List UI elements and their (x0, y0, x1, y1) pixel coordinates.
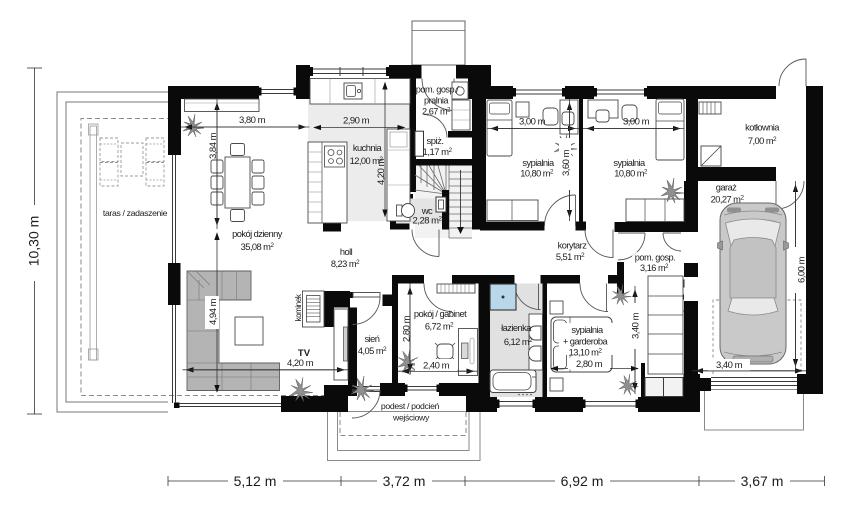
svg-text:TV: TV (298, 348, 311, 359)
svg-text:taras / zadaszenie: taras / zadaszenie (103, 208, 168, 218)
svg-text:6,00 m: 6,00 m (797, 256, 808, 283)
svg-text:podest / podcień: podest / podcień (381, 401, 440, 411)
svg-text:sypialnia: sypialnia (613, 158, 646, 168)
svg-text:12,00 m2: 12,00 m2 (350, 156, 384, 166)
svg-text:kotłownia: kotłownia (745, 123, 780, 133)
svg-text:pom. gosp.: pom. gosp. (635, 253, 675, 263)
svg-text:1,17 m2: 1,17 m2 (423, 147, 453, 158)
svg-text:2,67 m2: 2,67 m2 (422, 107, 451, 117)
svg-text:2,80 m: 2,80 m (402, 315, 413, 342)
svg-text:4,05 m2: 4,05 m2 (358, 346, 387, 356)
svg-text:3,00 m: 3,00 m (519, 117, 546, 128)
svg-text:spiż.: spiż. (426, 136, 443, 147)
svg-text:garaż: garaż (716, 183, 737, 193)
svg-text:5,51 m2: 5,51 m2 (556, 252, 585, 262)
svg-text:kominek: kominek (294, 293, 303, 321)
svg-text:3,80 m: 3,80 m (239, 115, 266, 126)
svg-text:korytarz: korytarz (558, 241, 588, 251)
svg-text:+ garderoba: + garderoba (563, 337, 609, 347)
svg-text:35,08 m2: 35,08 m2 (241, 242, 275, 252)
svg-text:pom. gosp./: pom. gosp./ (416, 85, 459, 95)
svg-text:3,00 m: 3,00 m (623, 117, 650, 128)
svg-text:6,12 m2: 6,12 m2 (504, 337, 533, 347)
svg-text:8,23 m2: 8,23 m2 (331, 259, 360, 269)
svg-text:pokój / gabinet: pokój / gabinet (414, 309, 467, 319)
svg-text:3,40 m: 3,40 m (631, 312, 642, 339)
svg-text:10,30 m: 10,30 m (26, 216, 42, 267)
svg-text:2,40 m: 2,40 m (423, 361, 450, 372)
svg-text:3,60 m: 3,60 m (561, 149, 572, 176)
svg-text:sień: sień (365, 334, 380, 344)
svg-text:13,10 m2: 13,10 m2 (569, 348, 603, 358)
svg-text:2,90 m: 2,90 m (343, 116, 370, 127)
svg-text:20,27 m2: 20,27 m2 (711, 195, 745, 205)
svg-text:kuchnia: kuchnia (353, 143, 383, 153)
svg-text:holl: holl (340, 247, 353, 257)
svg-text:sypialnia: sypialnia (571, 325, 604, 335)
svg-text:sypialnia: sypialnia (522, 158, 555, 168)
svg-text:6,92 m: 6,92 m (561, 473, 604, 489)
svg-text:pokój dzienny: pokój dzienny (232, 229, 283, 239)
svg-text:pralnia: pralnia (424, 96, 449, 106)
svg-text:4,94 m: 4,94 m (208, 298, 219, 325)
svg-text:2,80 m: 2,80 m (576, 359, 603, 370)
svg-text:3,16 m2: 3,16 m2 (640, 263, 669, 273)
svg-text:10,80 m2: 10,80 m2 (614, 169, 648, 179)
svg-text:wejściowy: wejściowy (392, 413, 430, 423)
svg-text:3,84 m: 3,84 m (208, 132, 219, 159)
svg-text:6,72 m2: 6,72 m2 (425, 322, 454, 332)
svg-text:2,28 m2: 2,28 m2 (413, 216, 443, 227)
svg-text:7,00 m2: 7,00 m2 (748, 136, 777, 146)
svg-text:3,72 m: 3,72 m (383, 473, 426, 489)
svg-text:3,40 m: 3,40 m (716, 360, 743, 371)
svg-text:5,12 m: 5,12 m (234, 473, 277, 489)
svg-text:3,67 m: 3,67 m (741, 473, 784, 489)
svg-text:4,20 m: 4,20 m (287, 358, 314, 369)
svg-text:łazienka: łazienka (501, 323, 532, 333)
svg-text:10,80 m2: 10,80 m2 (520, 169, 554, 179)
